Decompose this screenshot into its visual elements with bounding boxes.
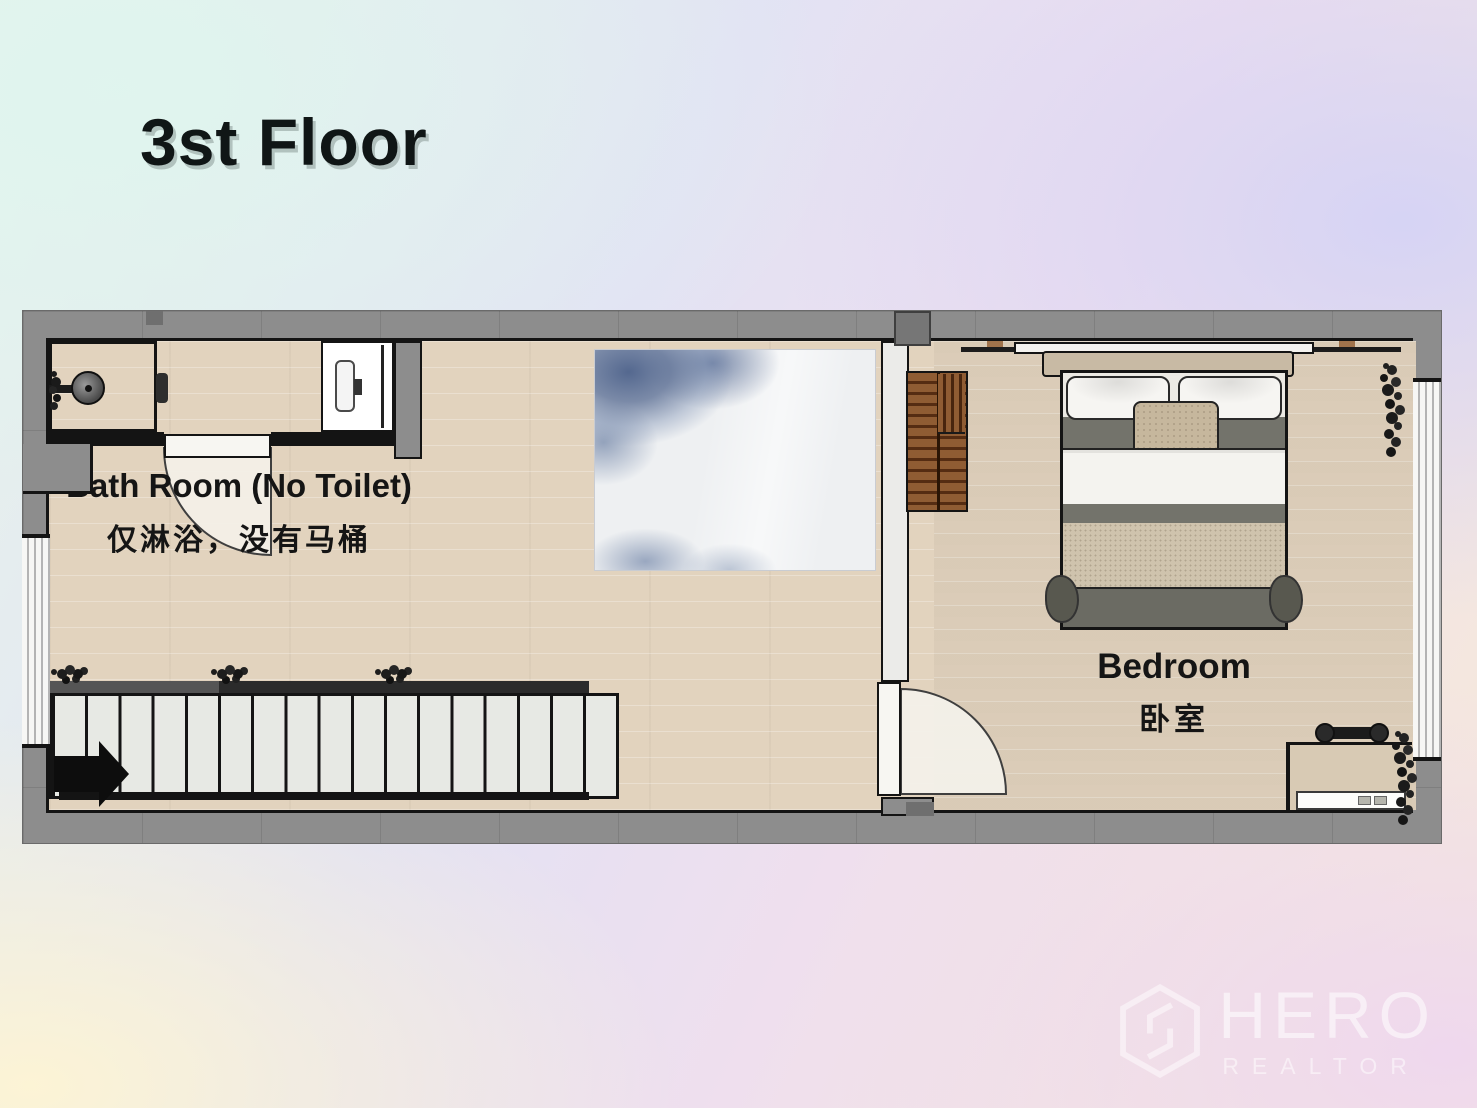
bed-foot <box>1269 575 1303 623</box>
stairs-baseboard <box>59 792 589 800</box>
floor-plan-interior: Bath Room (No Toilet) 仅淋浴，没有马桶 <box>46 338 1413 813</box>
watermark-brand: HERO <box>1218 984 1437 1047</box>
watermark: HERO REALTOR <box>1118 984 1437 1080</box>
bathroom-sink <box>321 341 394 432</box>
bathroom-wall-segment <box>271 432 397 446</box>
dividing-wall <box>881 341 909 682</box>
wardrobe-shelf-panel <box>938 374 965 434</box>
bathroom-label: Bath Room (No Toilet) <box>49 467 429 505</box>
bed-sheet-band <box>1063 504 1285 523</box>
plant-icon <box>1395 731 1401 737</box>
sink-cabinet-divider <box>381 345 384 428</box>
plant-icon <box>375 669 381 675</box>
hexagon-h-logo-icon <box>1118 984 1202 1078</box>
bed-duvet <box>1063 448 1285 504</box>
desk-accessory-icon <box>1374 796 1387 805</box>
desk-lamp-icon <box>1319 727 1385 739</box>
sink-faucet-icon <box>354 379 362 395</box>
plant-icon <box>1383 363 1389 369</box>
window-right <box>1413 378 1441 761</box>
slide-canvas: 3st Floor Bath Room (No <box>0 0 1477 1108</box>
watermark-text: HERO REALTOR <box>1218 984 1437 1080</box>
bathroom-door <box>164 434 271 458</box>
stairs-direction-arrow-head-icon <box>99 741 129 807</box>
shower-valve-icon <box>51 371 57 377</box>
area-rug <box>594 349 876 571</box>
page-title: 3st Floor <box>140 104 428 180</box>
bed-footboard <box>1063 587 1285 627</box>
shower-door-handle-icon <box>156 373 168 403</box>
stairs-direction-arrow-icon <box>54 756 100 792</box>
shower-head-icon <box>71 371 105 405</box>
sink-basin-icon <box>335 360 355 412</box>
desk <box>1286 742 1412 810</box>
window-left <box>22 534 50 748</box>
wall-tab <box>146 311 163 325</box>
stairs-handrail-segment <box>49 681 219 693</box>
floor-plan: Bath Room (No Toilet) 仅淋浴，没有马桶 <box>22 310 1442 844</box>
wall-corner-block <box>23 444 93 494</box>
wall-pillar <box>894 311 931 346</box>
bathroom-label-zh: 仅淋浴，没有马桶 <box>49 515 429 559</box>
bathroom-wall-column <box>394 341 422 459</box>
desk-accessory-icon <box>1358 796 1371 805</box>
curtain-bracket <box>1339 341 1355 347</box>
bedroom-label: Bedroom <box>1049 647 1299 687</box>
bed-blanket <box>1063 523 1285 587</box>
plant-icon <box>51 669 57 675</box>
bed-foot <box>1045 575 1079 623</box>
dividing-wall-notch <box>906 802 934 816</box>
plant-icon <box>211 669 217 675</box>
curtain-bracket <box>987 341 1003 347</box>
bedroom-label-zh: 卧室 <box>1049 694 1299 739</box>
staircase <box>49 693 619 799</box>
bed <box>1060 370 1288 630</box>
desk-front-panel <box>1296 791 1406 810</box>
bedroom-door <box>877 682 901 796</box>
watermark-subtitle: REALTOR <box>1218 1053 1437 1080</box>
